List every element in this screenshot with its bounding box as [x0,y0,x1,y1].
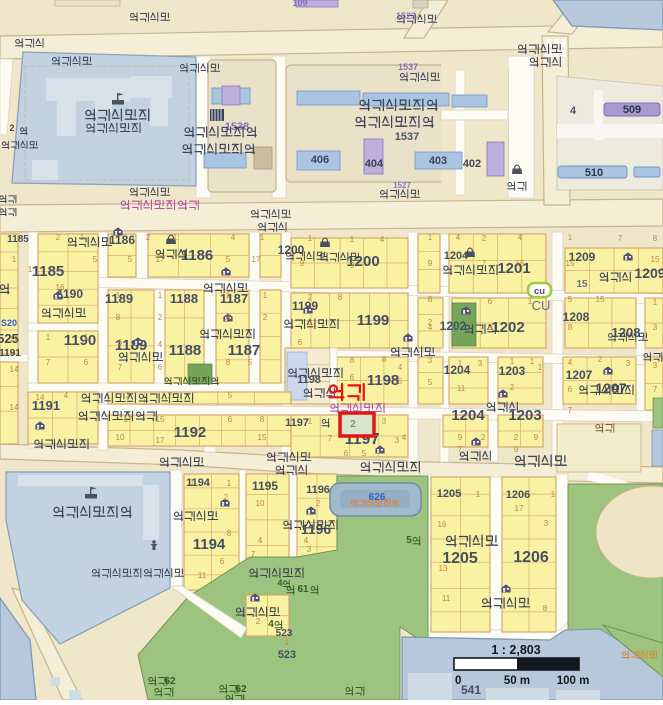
svg-text:1185: 1185 [7,234,29,245]
svg-text:1192: 1192 [174,424,207,441]
svg-text:8: 8 [428,295,433,304]
svg-text:1186: 1186 [181,247,214,264]
svg-text:1: 1 [226,291,231,300]
svg-text:2: 2 [514,433,519,442]
svg-text:6: 6 [220,557,225,566]
svg-text:1: 1 [530,357,535,366]
svg-text:510: 510 [585,167,603,179]
svg-text:1: 1 [12,255,17,264]
svg-text:1: 1 [428,233,433,242]
svg-text:9: 9 [534,433,539,442]
svg-text:5: 5 [93,255,98,264]
svg-text:1: 1 [46,333,51,342]
svg-text:15: 15 [596,295,605,304]
svg-text:1: 1 [551,490,556,499]
svg-text:1: 1 [80,233,85,242]
svg-text:1187: 1187 [220,291,248,306]
svg-text:8: 8 [350,356,355,365]
svg-text:1202: 1202 [440,319,467,333]
svg-text:1200: 1200 [278,243,305,257]
svg-text:62: 62 [235,684,247,695]
svg-text:1187: 1187 [228,342,261,359]
svg-text:1188: 1188 [170,291,198,306]
svg-text:5: 5 [568,295,573,304]
svg-text:1202: 1202 [491,319,524,336]
svg-text:100 m: 100 m [557,675,590,687]
svg-text:5: 5 [226,255,231,264]
svg-text:6: 6 [350,373,355,382]
svg-text:11: 11 [198,571,207,580]
svg-text:3: 3 [307,545,312,554]
svg-text:CU: CU [532,298,551,313]
svg-text:1: 1 [227,479,232,488]
svg-text:1: 1 [528,297,533,306]
svg-text:6: 6 [84,358,89,367]
svg-text:523: 523 [278,649,296,661]
svg-text:1: 1 [476,490,481,499]
svg-text:8: 8 [260,415,265,424]
svg-text:8: 8 [568,323,573,332]
svg-text:2: 2 [9,123,14,133]
svg-text:1: 1 [308,234,313,243]
svg-text:3: 3 [626,359,631,368]
svg-text:1523: 1523 [396,11,416,21]
svg-text:541: 541 [461,683,481,697]
svg-text:509: 509 [623,104,641,116]
svg-text:6: 6 [228,415,233,424]
svg-text:17: 17 [156,436,165,445]
svg-text:14: 14 [10,365,19,374]
svg-text:1: 1 [458,359,463,368]
svg-text:2: 2 [146,233,151,242]
svg-text:1: 1 [653,298,658,307]
svg-text:1206: 1206 [506,489,530,501]
svg-text:1194: 1194 [193,536,226,553]
svg-text:1207: 1207 [566,368,593,382]
svg-text:9: 9 [514,445,519,454]
svg-text:12: 12 [10,335,19,344]
svg-text:6: 6 [158,363,163,372]
svg-text:1: 1 [116,291,121,300]
svg-text:16: 16 [438,520,447,529]
svg-text:4: 4 [258,536,263,545]
svg-text:4: 4 [380,235,385,244]
svg-text:cu: cu [534,286,545,297]
svg-text:2: 2 [168,391,173,400]
svg-text:7: 7 [46,358,51,367]
svg-text:4: 4 [570,105,577,117]
svg-text:4: 4 [231,233,236,242]
svg-text:11: 11 [457,384,466,393]
svg-text:1190: 1190 [64,332,97,349]
svg-text:2: 2 [481,433,486,442]
svg-text:3: 3 [382,417,387,426]
svg-text:1204: 1204 [451,407,485,424]
svg-text:61: 61 [297,584,309,595]
svg-text:7: 7 [618,234,623,243]
svg-text:10: 10 [256,499,265,508]
svg-text:4: 4 [268,619,274,630]
svg-text:2: 2 [256,617,261,626]
svg-text:8: 8 [488,323,493,332]
svg-text:2: 2 [482,234,487,243]
svg-text:8: 8 [382,355,387,364]
svg-text:2: 2 [308,293,313,302]
svg-text:2: 2 [598,355,603,364]
svg-text:5: 5 [128,255,133,264]
svg-text:6: 6 [118,338,123,347]
svg-text:6: 6 [344,449,349,458]
svg-text:1537: 1537 [398,62,418,72]
svg-text:1: 1 [190,478,195,487]
svg-text:1537: 1537 [395,131,419,143]
svg-text:14: 14 [36,393,45,402]
svg-text:15: 15 [156,415,165,424]
svg-text:7: 7 [328,434,333,443]
svg-text:5: 5 [406,535,412,546]
svg-text:8: 8 [226,313,231,322]
svg-text:0: 0 [455,675,461,687]
svg-text:1195: 1195 [252,479,278,493]
svg-text:3: 3 [544,519,549,528]
svg-text:3: 3 [428,356,433,365]
svg-text:1: 1 [285,638,290,647]
svg-text:62: 62 [164,676,176,687]
svg-text:1209: 1209 [634,265,663,281]
svg-text:1: 1 [28,265,33,274]
svg-text:50 m: 50 m [504,675,530,687]
svg-text:4: 4 [428,323,433,332]
svg-text:9: 9 [350,261,355,270]
svg-text:5: 5 [428,378,433,387]
svg-text:1: 1 [350,235,355,244]
svg-text:3: 3 [395,436,400,445]
svg-text:1: 1 [568,233,573,242]
svg-text:1: 1 [263,291,268,300]
svg-text:1: 1 [173,233,178,242]
svg-text:1203: 1203 [499,364,526,378]
svg-text:4: 4 [456,233,461,242]
svg-text:13: 13 [439,564,448,573]
svg-text:8: 8 [227,529,232,538]
svg-text:1205: 1205 [437,488,461,500]
svg-text:5: 5 [398,377,403,386]
svg-text:15: 15 [258,433,267,442]
svg-text:10: 10 [116,433,125,442]
svg-text:1199: 1199 [357,312,390,329]
svg-text:403: 403 [429,155,447,167]
svg-text:7: 7 [568,406,573,415]
svg-text:16: 16 [56,283,65,292]
svg-text:9: 9 [428,259,433,268]
svg-text:15: 15 [566,259,575,268]
svg-text:1198: 1198 [367,372,400,389]
svg-text:8: 8 [653,234,658,243]
svg-text:1208: 1208 [563,310,590,324]
svg-text:406: 406 [311,154,329,166]
svg-text:7: 7 [118,363,123,372]
svg-text:2: 2 [158,313,163,322]
svg-text:1: 1 [510,357,515,366]
svg-text:3: 3 [653,361,658,370]
svg-text:17: 17 [252,255,261,264]
svg-text:15: 15 [651,255,660,264]
svg-text:4: 4 [158,340,163,349]
svg-text:17: 17 [515,504,524,513]
svg-text:3: 3 [653,323,658,332]
svg-text:9: 9 [300,259,305,268]
svg-text:5: 5 [228,391,233,400]
svg-text:17: 17 [156,255,165,264]
svg-text:1201: 1201 [497,260,530,277]
svg-text:7: 7 [482,259,487,268]
svg-text:4: 4 [64,391,69,400]
svg-text:S20: S20 [1,318,17,328]
svg-text:626: 626 [369,492,386,503]
svg-text:109: 109 [292,0,307,8]
svg-text:6: 6 [568,385,573,394]
svg-text:4: 4 [277,578,282,588]
svg-text:4: 4 [304,536,309,545]
svg-text:4: 4 [518,233,523,242]
svg-text:2: 2 [263,313,268,322]
svg-text:15: 15 [516,259,525,268]
svg-text:2: 2 [224,493,229,502]
svg-text:14: 14 [10,403,19,412]
svg-text:2: 2 [316,499,321,508]
svg-text:1196: 1196 [306,484,330,496]
svg-text:8: 8 [338,293,343,302]
svg-text:5: 5 [362,449,367,458]
svg-text:1188: 1188 [169,342,202,359]
svg-text:2: 2 [510,383,515,392]
svg-text:8: 8 [116,313,121,322]
svg-text:7: 7 [653,385,658,394]
svg-text:9: 9 [458,433,463,442]
svg-text:4: 4 [398,363,403,372]
svg-text:11: 11 [442,594,451,603]
svg-text:4: 4 [568,358,573,367]
svg-text:1: 1 [538,363,543,372]
svg-text:402: 402 [463,158,481,170]
svg-text:3: 3 [478,359,483,368]
svg-text:1: 1 [260,233,265,242]
svg-text:1206: 1206 [513,549,549,566]
svg-text:1191: 1191 [0,348,21,359]
svg-text:2: 2 [350,419,356,430]
svg-text:17: 17 [124,415,133,424]
svg-text:404: 404 [365,158,384,170]
svg-text:15: 15 [576,279,588,290]
svg-text:1: 1 [158,291,163,300]
svg-text:8: 8 [226,358,231,367]
svg-text:2: 2 [126,391,131,400]
svg-text:1 : 2,803: 1 : 2,803 [491,643,540,657]
svg-text:1: 1 [308,417,313,426]
svg-text:2: 2 [56,233,61,242]
svg-text:8: 8 [308,318,313,327]
svg-text:1205: 1205 [442,550,478,567]
svg-text:4: 4 [402,433,407,442]
svg-text:5: 5 [248,358,253,367]
svg-text:1: 1 [84,333,89,342]
svg-text:7: 7 [458,445,463,454]
svg-text:1197: 1197 [285,417,309,429]
svg-text:1527: 1527 [393,181,411,190]
svg-text:1185: 1185 [32,263,65,280]
svg-text:7: 7 [251,550,256,559]
svg-text:6: 6 [488,297,493,306]
svg-text:8: 8 [543,604,548,613]
svg-text:6: 6 [298,338,303,347]
